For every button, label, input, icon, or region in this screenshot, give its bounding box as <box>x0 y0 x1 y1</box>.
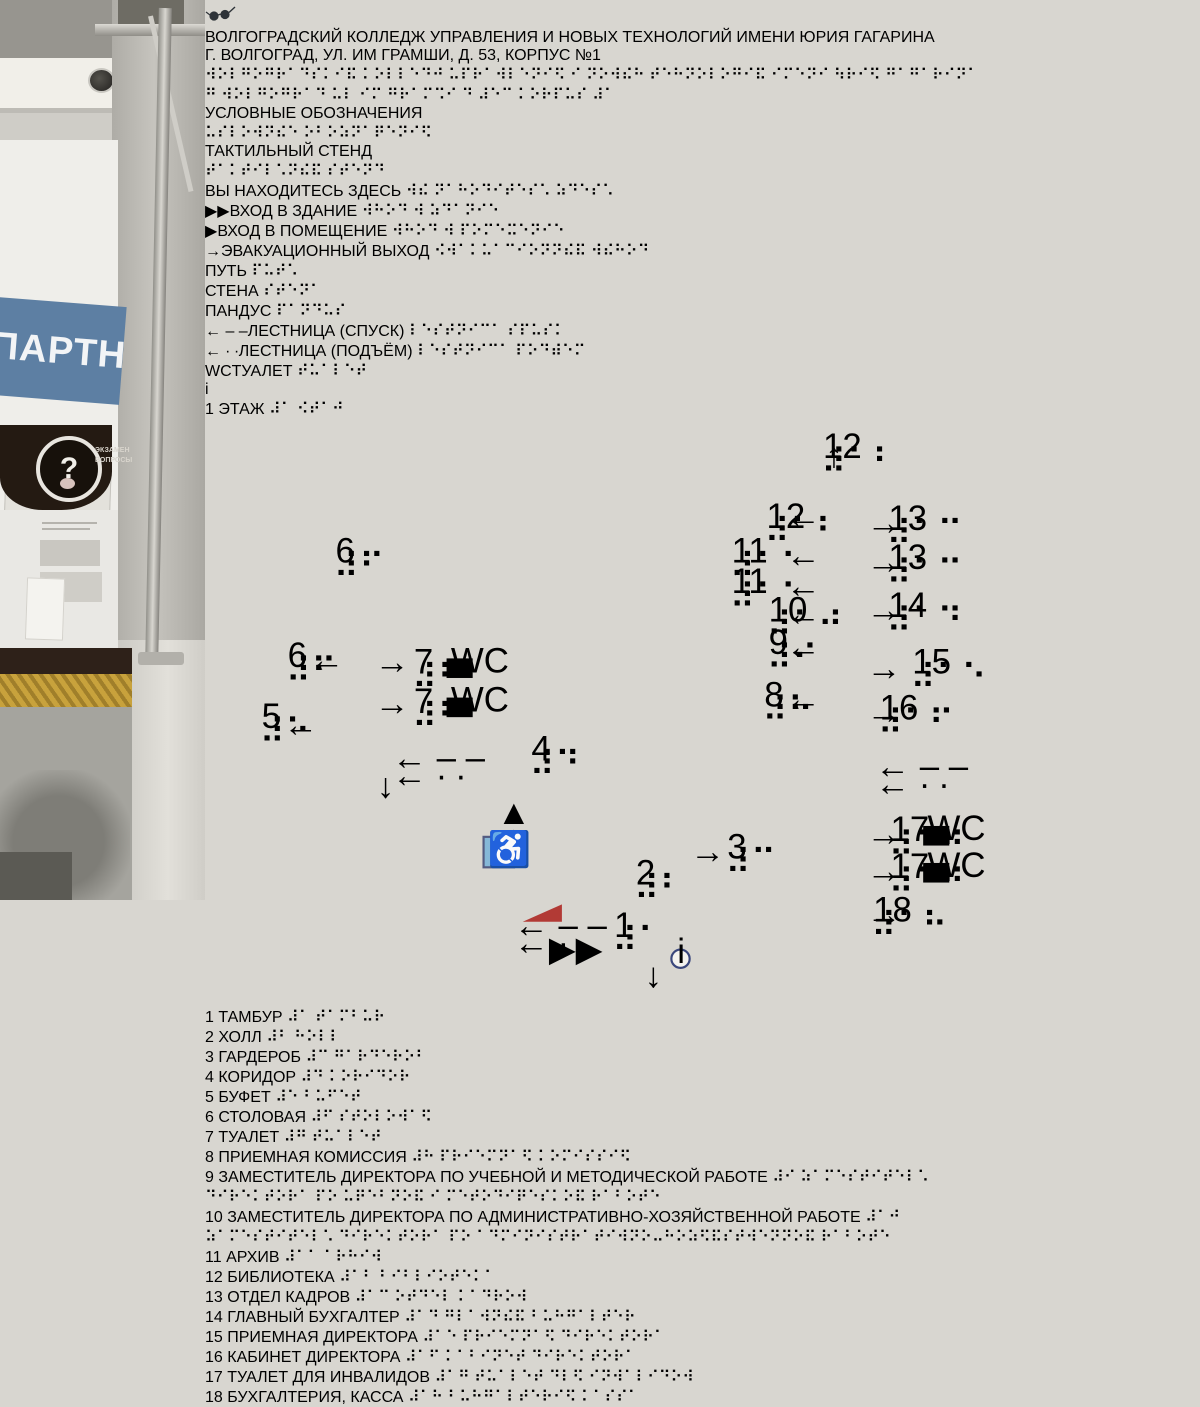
svg-text:←: ← <box>283 706 318 745</box>
legend-braille: ⠇⠑⠎⠞⠝⠊⠉⠁ ⠏⠕⠙⠾⠑⠍ <box>417 343 586 360</box>
svg-text:⠼⠁: ⠼⠁ <box>612 921 663 960</box>
room-list-item: 11 АРХИВ ⠼⠁⠁ ⠁⠗⠓⠊⠺ <box>205 1247 1032 1267</box>
exam-text: ЭКЗАМЕН ВОПРОСЫ <box>95 446 135 466</box>
plan-title: 1 ЭТАЖ ⠼⠁ ⠪⠞⠁⠚ <box>205 399 1032 419</box>
legend-item: ВЫ НАХОДИТЕСЬ ЗДЕСЬ ⠺⠮ ⠝⠁⠓⠕⠙⠊⠞⠑⠎⠡ ⠵⠙⠑⠎⠡ <box>205 181 1032 201</box>
tactile-strip <box>0 674 132 707</box>
room-list-item: 7 ТУАЛЕТ ⠼⠛ ⠞⠥⠁⠇⠑⠞ <box>205 1127 1032 1147</box>
svg-text:WC: WC <box>928 846 986 885</box>
floor-mat <box>0 852 72 900</box>
room-list-item: 6 СТОЛОВАЯ ⠼⠋ ⠎⠞⠕⠇⠕⠺⠁⠫ <box>205 1107 1032 1127</box>
room-braille-1: ⠼⠋ ⠎⠞⠕⠇⠕⠺⠁⠫ <box>310 1109 432 1126</box>
room-list-item: 16 КАБИНЕТ ДИРЕКТОРА ⠼⠁⠋ ⠅⠁⠃⠊⠝⠑⠞ ⠙⠊⠗⠑⠅⠞⠕… <box>205 1347 1032 1367</box>
svg-text:→: → <box>375 684 410 723</box>
legend-label: ТУАЛЕТ <box>232 363 293 380</box>
room-label: ЗАМЕСТИТЕЛЬ ДИРЕКТОРА <box>227 1209 444 1226</box>
legend-heading: УСЛОВНЫЕ ОБОЗНАЧЕНИЯ <box>205 105 1032 123</box>
svg-text:⠼⠉: ⠼⠉ <box>725 843 776 882</box>
room-number: 10 <box>205 1209 223 1226</box>
room-number: 7 <box>205 1129 214 1146</box>
room-list-item: 10 ЗАМЕСТИТЕЛЬ ДИРЕКТОРА ПО АДМИНИСТРАТИ… <box>205 1207 1032 1247</box>
plan-area: 1 ЭТАЖ ⠼⠁ ⠪⠞⠁⠚ 6⠼⠋6⠼⠋5⠼⠑7⠼ <box>205 399 1032 1007</box>
legend-label: ВХОД В ПОМЕЩЕНИЕ <box>217 223 387 240</box>
room-label-2: ПО УЧЕБНОЙ И МЕТОДИЧЕСКОЙ РАБОТЕ <box>440 1169 768 1186</box>
room-list-item: 14 ГЛАВНЫЙ БУХГАЛТЕР ⠼⠁⠙ ⠛⠇⠁⠺⠝⠮⠯ ⠃⠥⠓⠛⠁⠇⠞… <box>205 1307 1032 1327</box>
room-label: СТОЛОВАЯ <box>218 1109 306 1126</box>
legend-braille: ⠎⠞⠑⠝⠁ <box>263 283 322 300</box>
svg-text:↓: ↓ <box>377 767 394 806</box>
room-label: ЗАМЕСТИТЕЛЬ ДИРЕКТОРА <box>218 1169 435 1186</box>
svg-text:↑: ↑ <box>825 436 842 475</box>
room-braille-1: ⠼⠁⠛ ⠞⠥⠁⠇⠑⠞ ⠙⠇⠫ <box>435 1369 585 1386</box>
partner-header: ПАРТНЕРЫ <box>0 297 127 405</box>
legend-list: ВЫ НАХОДИТЕСЬ ЗДЕСЬ ⠺⠮ ⠝⠁⠓⠕⠙⠊⠞⠑⠎⠡ ⠵⠙⠑⠎⠡ … <box>205 181 1032 381</box>
legend-label: ПАНДУС <box>205 303 271 320</box>
room-list-item: 13 ОТДЕЛ КАДРОВ ⠼⠁⠉ ⠕⠞⠙⠑⠇ ⠅⠁⠙⠗⠕⠺ <box>205 1287 1032 1307</box>
room-number: 15 <box>205 1329 223 1346</box>
room-number: 1 <box>205 1009 214 1026</box>
room-braille-1: ⠼⠁⠙ ⠛⠇⠁⠺⠝⠮⠯ ⠃⠥⠓⠛⠁⠇⠞⠑⠗ <box>404 1309 636 1326</box>
room-label: БИБЛИОТЕКА <box>227 1269 334 1286</box>
svg-text:←: ← <box>786 680 821 719</box>
room-list-item: 12 БИБЛИОТЕКА ⠼⠁⠃ ⠃⠊⠃⠇⠊⠕⠞⠑⠅⠁ <box>205 1267 1032 1287</box>
room-number: 3 <box>205 1049 214 1066</box>
stand-base <box>0 648 132 674</box>
legend-item: →ЭВАКУАЦИОННЫЙ ВЫХОД ⠪⠺⠁⠅⠥⠁⠉⠊⠕⠝⠝⠮⠯ ⠺⠮⠓⠕⠙ <box>205 241 1032 261</box>
room-number: 13 <box>205 1289 223 1306</box>
title-braille-2: ⠛ ⠺⠕⠇⠛⠕⠛⠗⠁⠙ ⠥⠇ ⠊⠍ ⠛⠗⠁⠍⠩⠊ ⠙ ⠼⠑⠉ ⠅⠕⠗⠏⠥⠎ ⠼⠁ <box>205 85 1032 105</box>
svg-text:WC: WC <box>451 642 509 681</box>
room-label: КАБИНЕТ ДИРЕКТОРА <box>227 1349 400 1366</box>
room-number: 2 <box>205 1029 214 1046</box>
legend-item: ПАНДУС ⠏⠁⠝⠙⠥⠎ <box>205 301 1032 321</box>
room-number: 4 <box>205 1069 214 1086</box>
sign-subtitle: Г. ВОЛГОГРАД, УЛ. ИМ ГРАМШИ, Д. 53, КОРП… <box>205 47 1032 65</box>
room-label: ТУАЛЕТ <box>218 1129 279 1146</box>
room-number: 14 <box>205 1309 223 1326</box>
legend-icon: → <box>205 243 221 260</box>
legend-item: ▶ВХОД В ПОМЕЩЕНИЕ ⠺⠓⠕⠙ ⠺ ⠏⠕⠍⠑⠭⠑⠝⠊⠑ <box>205 221 1032 241</box>
svg-text:→: → <box>867 590 902 629</box>
title-braille-1: ⠺⠕⠇⠛⠕⠛⠗⠁⠙⠎⠅⠊⠯ ⠅⠕⠇⠇⠑⠙⠚ ⠥⠏⠗⠁⠺⠇⠑⠝⠊⠫ ⠊ ⠝⠕⠺⠮⠓… <box>205 65 1032 85</box>
legend-label: ВХОД В ЗДАНИЕ <box>230 203 358 220</box>
room-braille-1: ⠼⠓ ⠏⠗⠊⠑⠍⠝⠁⠫ ⠅⠕⠍⠊⠎⠎⠊⠫ <box>411 1149 631 1166</box>
svg-text:← ∙ ∙: ← ∙ ∙ <box>514 923 588 962</box>
tactile-sign: ВОЛГОГРАДСКИЙ КОЛЛЕДЖ УПРАВЛЕНИЯ И НОВЫХ… <box>205 0 1032 1407</box>
room-list-column-1: 1 ТАМБУР ⠼⠁ ⠞⠁⠍⠃⠥⠗ 2 ХОЛЛ ⠼⠃ ⠓⠕⠇⠇ 3 <box>205 1007 1032 1147</box>
legend-label: СТЕНА <box>205 283 259 300</box>
room-braille-1: ⠼⠉ ⠛⠁⠗⠙⠑⠗⠕⠃ <box>305 1049 427 1066</box>
legend-label: ЛЕСТНИЦА (ПОДЪЁМ) <box>239 343 413 360</box>
svg-text:→: → <box>867 503 902 542</box>
legend-icon: ▶▶ <box>205 203 230 220</box>
photo-root: { "scene": { "partner_title": "ПАРТНЕРЫ"… <box>0 0 1200 900</box>
room-list-item: 9 ЗАМЕСТИТЕЛЬ ДИРЕКТОРА ПО УЧЕБНОЙ И МЕТ… <box>205 1167 1032 1207</box>
svg-text:WC: WC <box>451 681 509 720</box>
security-camera-icon <box>88 68 115 93</box>
legend-item: ▶▶ВХОД В ЗДАНИЕ ⠺⠓⠕⠙ ⠺ ⠵⠙⠁⠝⠊⠑ <box>205 201 1032 221</box>
svg-text:←: ← <box>309 640 344 679</box>
legend-braille: ⠪⠺⠁⠅⠥⠁⠉⠊⠕⠝⠝⠮⠯ ⠺⠮⠓⠕⠙ <box>434 243 649 260</box>
svg-text:WC: WC <box>928 809 986 848</box>
legend-label: ЭВАКУАЦИОННЫЙ ВЫХОД <box>221 243 429 260</box>
room-label: ГАРДЕРОБ <box>218 1049 301 1066</box>
room-list-item: 5 БУФЕТ ⠼⠑ ⠃⠥⠋⠑⠞ <box>205 1087 1032 1107</box>
room-label-2: ПО АДМИНИСТРАТИВНО-ХОЗЯЙСТВЕННОЙ РАБОТЕ <box>449 1209 861 1226</box>
legend-item: ← – –ЛЕСТНИЦА (СПУСК) ⠇⠑⠎⠞⠝⠊⠉⠁ ⠎⠏⠥⠎⠅ <box>205 321 1032 341</box>
room-list-item: 8 ПРИЕМНАЯ КОМИССИЯ ⠼⠓ ⠏⠗⠊⠑⠍⠝⠁⠫ ⠅⠕⠍⠊⠎⠎⠊⠫ <box>205 1147 1032 1167</box>
sign-title: ВОЛГОГРАДСКИЙ КОЛЛЕДЖ УПРАВЛЕНИЯ И НОВЫХ… <box>205 29 1032 47</box>
legend-icon: ← ∙ ∙ <box>205 343 239 360</box>
room-braille-1: ⠼⠁⠋ ⠅⠁⠃⠊⠝⠑⠞ ⠙⠊⠗⠑⠅⠞⠕⠗⠁ <box>405 1349 637 1366</box>
room-braille-1: ⠼⠁ ⠞⠁⠍⠃⠥⠗ <box>287 1009 385 1026</box>
room-label-2: ИНВАЛИДОВ <box>330 1369 430 1386</box>
legend-braille: ⠺⠓⠕⠙ ⠺ ⠵⠙⠁⠝⠊⠑ <box>362 203 500 220</box>
svg-text:→: → <box>867 852 902 891</box>
room-list-column-4: 17 ТУАЛЕТ ДЛЯ ИНВАЛИДОВ ⠼⠁⠛ ⠞⠥⠁⠇⠑⠞ ⠙⠇⠫ ⠊… <box>205 1367 1032 1407</box>
legend-item: ПУТЬ ⠏⠥⠞⠡ <box>205 261 1032 281</box>
room-braille-1: ⠼⠁⠑ ⠏⠗⠊⠑⠍⠝⠁⠫ ⠙⠊⠗⠑⠅⠞⠕⠗⠁ <box>422 1329 665 1346</box>
svg-text:⠼⠙: ⠼⠙ <box>529 745 580 784</box>
legend-braille: ⠏⠁⠝⠙⠥⠎ <box>276 303 346 320</box>
svg-text:→: → <box>690 832 725 871</box>
legend-braille: ⠺⠮ ⠝⠁⠓⠕⠙⠊⠞⠑⠎⠡ ⠵⠙⠑⠎⠡ <box>406 183 614 200</box>
legend-braille: ⠇⠑⠎⠞⠝⠊⠉⠁ ⠎⠏⠥⠎⠅ <box>409 323 566 340</box>
room-list-column-2: 8 ПРИЕМНАЯ КОМИССИЯ ⠼⠓ ⠏⠗⠊⠑⠍⠝⠁⠫ ⠅⠕⠍⠊⠎⠎⠊⠫… <box>205 1147 1032 1287</box>
svg-text:←: ← <box>786 627 821 666</box>
legend: УСЛОВНЫЕ ОБОЗНАЧЕНИЯ ⠥⠎⠇⠕⠺⠝⠮⠑ ⠕⠃⠕⠵⠝⠁⠟⠑⠝⠊… <box>205 105 1032 381</box>
room-braille-1: ⠼⠃ ⠓⠕⠇⠇ <box>266 1029 341 1046</box>
room-list-column-3: 13 ОТДЕЛ КАДРОВ ⠼⠁⠉ ⠕⠞⠙⠑⠇ ⠅⠁⠙⠗⠕⠺ 14 ГЛАВ… <box>205 1287 1032 1367</box>
info-pointer: i <box>205 381 1032 399</box>
floor-plan-svg: 6⠼⠋6⠼⠋5⠼⠑7⠼⠛WC7⠼⠛WC4⠼⠙3⠼⠉2⠼⠃1⠼⠁12⠼⠁⠃12⠼⠁… <box>205 419 1032 1002</box>
partner-title: ПАРТНЕРЫ <box>0 324 127 385</box>
legend-label: ВЫ НАХОДИТЕСЬ ЗДЕСЬ <box>205 183 401 200</box>
legend-icon: ▶ <box>205 223 217 240</box>
svg-text:i: i <box>677 932 685 971</box>
room-braille-2: ⠏⠕ ⠥⠟⠑⠃⠝⠕⠯ ⠊ ⠍⠑⠞⠕⠙⠊⠟⠑⠎⠅⠕⠯ ⠗⠁⠃⠕⠞⠑ <box>315 1189 661 1206</box>
room-number: 12 <box>205 1269 223 1286</box>
room-braille-2: ⠏⠕ ⠁⠙⠍⠊⠝⠊⠎⠞⠗⠁⠞⠊⠺⠝⠕⠤⠓⠕⠵⠫⠯⠎⠞⠺⠑⠝⠝⠕⠯ ⠗⠁⠃⠕⠞⠑ <box>448 1229 890 1246</box>
room-label: ОТДЕЛ КАДРОВ <box>227 1289 350 1306</box>
svg-text:→: → <box>375 643 410 682</box>
room-label: АРХИВ <box>226 1249 279 1266</box>
paper-sheet <box>25 577 65 640</box>
sign-titles: ВОЛГОГРАДСКИЙ КОЛЛЕДЖ УПРАВЛЕНИЯ И НОВЫХ… <box>205 29 1032 105</box>
svg-text:← ∙ ∙: ← ∙ ∙ <box>875 765 949 804</box>
legend-braille: ⠞⠥⠁⠇⠑⠞ <box>297 363 367 380</box>
plan-title-braille: ⠼⠁ ⠪⠞⠁⠚ <box>269 401 344 418</box>
info-icon: i <box>205 381 209 398</box>
legend-label: ПУТЬ <box>205 263 247 280</box>
room-braille-2: ⠊⠝⠺⠁⠇⠊⠙⠕⠺ <box>588 1369 693 1386</box>
svg-text:⠼⠋: ⠼⠋ <box>333 547 384 586</box>
room-label-2: КАССА <box>350 1389 403 1406</box>
legend-label: ЛЕСТНИЦА (СПУСК) <box>248 323 405 340</box>
room-label: ПРИЕМНАЯ ДИРЕКТОРА <box>227 1329 418 1346</box>
tactile-stand-braille: ⠞⠁⠅⠞⠊⠇⠡⠝⠮⠯ ⠎⠞⠑⠝⠙ <box>205 161 1032 181</box>
question-mark-icon: ? <box>36 436 102 502</box>
room-list-item: 2 ХОЛЛ ⠼⠃ ⠓⠕⠇⠇ <box>205 1027 1032 1047</box>
legend-item: WCТУАЛЕТ ⠞⠥⠁⠇⠑⠞ <box>205 361 1032 381</box>
left-scene: ПАРТНЕРЫ «ВГАЗ-СУАЛ» АО «СУАЛ» ? ЭКЗАМЕН… <box>0 0 205 900</box>
room-braille-1: ⠼⠁⠓ ⠃⠥⠓⠛⠁⠇⠞⠑⠗⠊⠫ <box>408 1389 577 1406</box>
svg-text:←: ← <box>786 497 821 536</box>
question-dot <box>60 478 75 489</box>
room-braille-1: ⠼⠁⠉ ⠕⠞⠙⠑⠇ ⠅⠁⠙⠗⠕⠺ <box>355 1289 528 1306</box>
legend-item: СТЕНА ⠎⠞⠑⠝⠁ <box>205 281 1032 301</box>
room-number: 5 <box>205 1089 214 1106</box>
legend-braille: ⠺⠓⠕⠙ ⠺ ⠏⠕⠍⠑⠭⠑⠝⠊⠑ <box>392 223 565 240</box>
room-list-item: 17 ТУАЛЕТ ДЛЯ ИНВАЛИДОВ ⠼⠁⠛ ⠞⠥⠁⠇⠑⠞ ⠙⠇⠫ ⠊… <box>205 1367 1032 1387</box>
svg-text:← ∙ ∙: ← ∙ ∙ <box>392 756 466 795</box>
room-label: ХОЛЛ <box>218 1029 261 1046</box>
legend-icon: ← – – <box>205 323 248 340</box>
room-label: КОРИДОР <box>218 1069 296 1086</box>
svg-text:→: → <box>867 543 902 582</box>
legend-icon: WC <box>205 363 232 380</box>
svg-text:⠼⠁⠑: ⠼⠁⠑ <box>910 658 986 697</box>
room-braille-1: ⠼⠑ ⠃⠥⠋⠑⠞ <box>275 1089 361 1106</box>
svg-text:→: → <box>867 693 902 732</box>
svg-text:♿: ♿ <box>488 829 531 869</box>
room-braille-1: ⠼⠙ ⠅⠕⠗⠊⠙⠕⠗ <box>301 1069 411 1086</box>
room-number: 17 <box>205 1369 223 1386</box>
room-braille-2: ⠅⠁⠎⠎⠁ <box>581 1389 640 1406</box>
legend-heading-braille: ⠥⠎⠇⠕⠺⠝⠮⠑ ⠕⠃⠕⠵⠝⠁⠟⠑⠝⠊⠫ <box>205 123 1032 143</box>
glasses-icon <box>205 0 1032 29</box>
svg-text:⠼⠃: ⠼⠃ <box>634 869 685 908</box>
room-number: 16 <box>205 1349 223 1366</box>
room-list-item: 3 ГАРДЕРОБ ⠼⠉ ⠛⠁⠗⠙⠑⠗⠕⠃ <box>205 1047 1032 1067</box>
room-number: 8 <box>205 1149 214 1166</box>
room-braille-1: ⠼⠁⠁ ⠁⠗⠓⠊⠺ <box>284 1249 382 1266</box>
room-label: ТУАЛЕТ ДЛЯ <box>227 1369 325 1386</box>
legend-braille: ⠏⠥⠞⠡ <box>251 263 298 280</box>
svg-text:↓: ↓ <box>645 956 662 995</box>
svg-text:→: → <box>867 895 902 934</box>
room-label: ГЛАВНЫЙ БУХГАЛТЕР <box>227 1309 399 1326</box>
svg-text:→: → <box>867 649 902 688</box>
room-braille-1: ⠼⠛ ⠞⠥⠁⠇⠑⠞ <box>284 1129 382 1146</box>
legend-item: ← ∙ ∙ЛЕСТНИЦА (ПОДЪЁМ) ⠇⠑⠎⠞⠝⠊⠉⠁ ⠏⠕⠙⠾⠑⠍ <box>205 341 1032 361</box>
wall-layer: ВОЛГОГРАДСКИЙ КОЛЛЕДЖ УПРАВЛЕНИЯ И НОВЫХ… <box>205 0 1032 900</box>
pole-foot <box>138 652 184 665</box>
tactile-stand-label: ТАКТИЛЬНЫЙ СТЕНД <box>205 143 1032 161</box>
room-number: 18 <box>205 1389 223 1406</box>
room-list-item: 4 КОРИДОР ⠼⠙ ⠅⠕⠗⠊⠙⠕⠗ <box>205 1067 1032 1087</box>
room-number: 6 <box>205 1109 214 1126</box>
sign-header: ВОЛГОГРАДСКИЙ КОЛЛЕДЖ УПРАВЛЕНИЯ И НОВЫХ… <box>205 0 1032 105</box>
room-braille-1: ⠼⠁⠃ ⠃⠊⠃⠇⠊⠕⠞⠑⠅⠁ <box>339 1269 496 1286</box>
room-label: ТАМБУР <box>218 1009 282 1026</box>
room-number: 9 <box>205 1169 214 1186</box>
room-label: БУХГАЛТЕРИЯ, <box>227 1389 346 1406</box>
room-number: 11 <box>205 1249 222 1266</box>
room-label: БУФЕТ <box>218 1089 270 1106</box>
room-list-item: 1 ТАМБУР ⠼⠁ ⠞⠁⠍⠃⠥⠗ <box>205 1007 1032 1027</box>
room-list-item: 18 БУХГАЛТЕРИЯ, КАССА ⠼⠁⠓ ⠃⠥⠓⠛⠁⠇⠞⠑⠗⠊⠫ ⠅⠁… <box>205 1387 1032 1407</box>
room-list-item: 15 ПРИЕМНАЯ ДИРЕКТОРА ⠼⠁⠑ ⠏⠗⠊⠑⠍⠝⠁⠫ ⠙⠊⠗⠑⠅… <box>205 1327 1032 1347</box>
svg-text:→: → <box>867 815 902 854</box>
room-label: ПРИЕМНАЯ КОМИССИЯ <box>218 1149 406 1166</box>
